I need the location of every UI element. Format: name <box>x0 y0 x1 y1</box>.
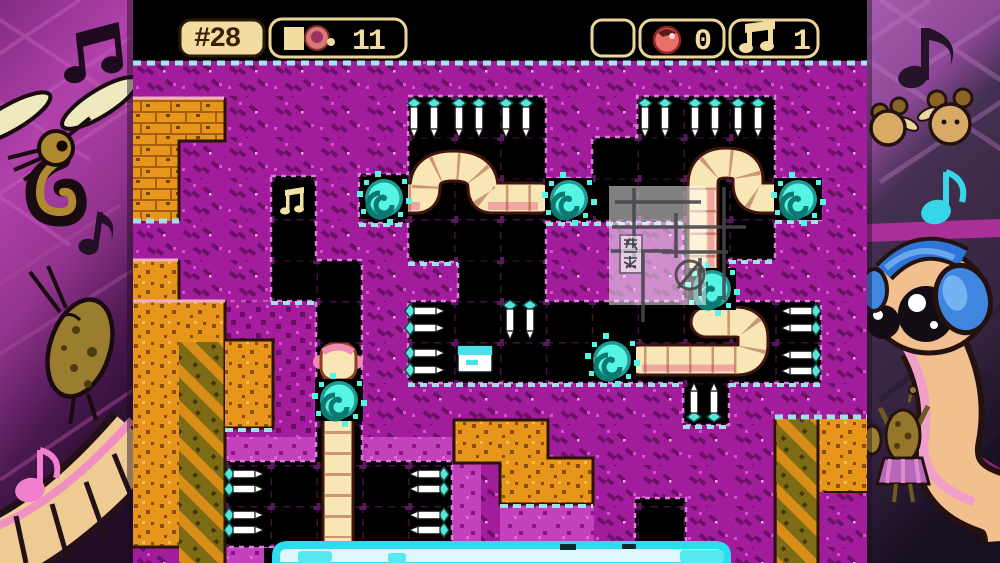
svg-text:0: 0 <box>694 25 712 59</box>
svg-text:11: 11 <box>352 25 385 59</box>
svg-text:#28: #28 <box>194 24 241 55</box>
svg-text:1: 1 <box>793 25 811 59</box>
